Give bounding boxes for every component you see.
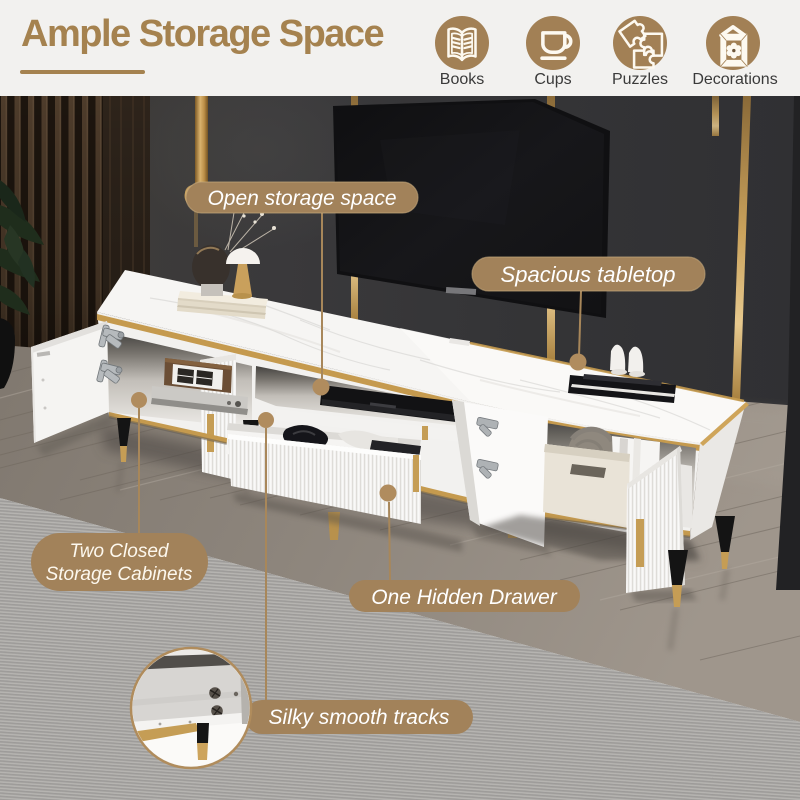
svg-text:Open storage space: Open storage space: [207, 187, 396, 210]
svg-text:Two Closed: Two Closed: [70, 541, 170, 562]
svg-text:Spacious tabletop: Spacious tabletop: [501, 262, 676, 287]
svg-text:Storage Cabinets: Storage Cabinets: [46, 564, 193, 585]
svg-text:Silky smooth tracks: Silky smooth tracks: [269, 706, 450, 729]
svg-text:One Hidden Drawer: One Hidden Drawer: [371, 586, 558, 609]
